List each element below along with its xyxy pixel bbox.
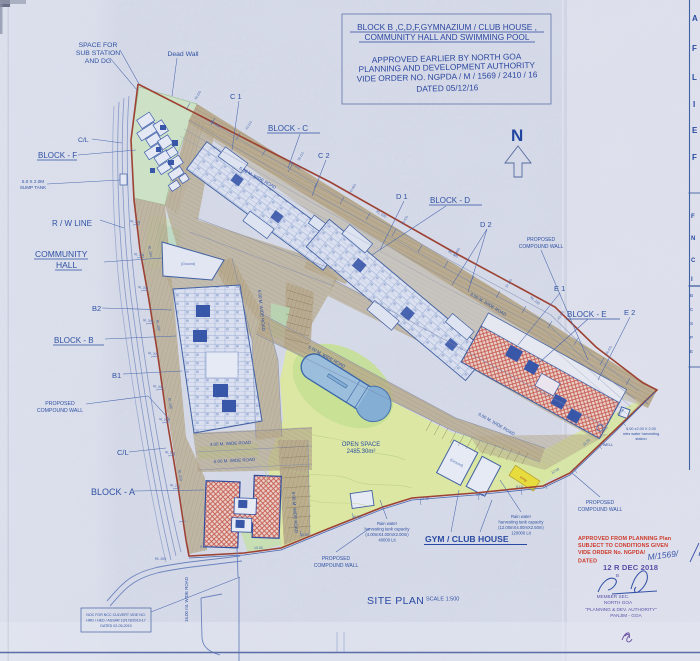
svg-text:SUMP TANK: SUMP TANK	[20, 185, 47, 190]
svg-text:2485.30m²: 2485.30m²	[347, 449, 376, 455]
svg-text:harvesting tank capacity: harvesting tank capacity	[365, 527, 411, 532]
svg-text:C/L: C/L	[78, 137, 89, 144]
svg-text:C 1: C 1	[230, 92, 242, 101]
svg-text:COMPOUND WALL: COMPOUND WALL	[578, 507, 623, 513]
svg-text:5.0 X 2.0M: 5.0 X 2.0M	[22, 179, 44, 184]
svg-text:mtrs water harvesting: mtrs water harvesting	[623, 432, 659, 436]
svg-text:DATED 05/12/16: DATED 05/12/16	[416, 82, 479, 94]
svg-text:F: F	[692, 44, 697, 53]
svg-text:S: S	[690, 321, 693, 326]
svg-text:E: E	[692, 126, 698, 135]
svg-text:E 2: E 2	[624, 308, 635, 317]
svg-text:GYM / CLUB HOUSE: GYM / CLUB HOUSE	[425, 534, 509, 544]
svg-text:PROPOSED: PROPOSED	[322, 556, 351, 562]
svg-text:BLOCK B ,C,D,F,GYMNAZIUM / CLU: BLOCK B ,C,D,F,GYMNAZIUM / CLUB HOUSE ,	[357, 22, 537, 32]
svg-text:PROPOSED: PROPOSED	[527, 237, 556, 243]
svg-text:F: F	[691, 214, 695, 220]
svg-text:SUBJECT TO CONDITIONS GIVEN: SUBJECT TO CONDITIONS GIVEN	[578, 543, 668, 549]
svg-text:COMPOUND WALL: COMPOUND WALL	[314, 563, 359, 569]
svg-text:SUB STATION: SUB STATION	[76, 50, 120, 57]
svg-text:PROPOSED: PROPOSED	[586, 500, 615, 506]
svg-text:PROPOSED: PROPOSED	[45, 401, 75, 407]
svg-text:N: N	[691, 236, 695, 242]
svg-text:E 1: E 1	[554, 284, 565, 293]
svg-text:WELL: WELL	[603, 443, 613, 447]
svg-text:station: station	[635, 437, 646, 441]
svg-text:B: B	[690, 293, 693, 298]
svg-text:harvesting tank capacity: harvesting tank capacity	[499, 520, 545, 525]
svg-text:(Ground): (Ground)	[181, 262, 195, 266]
svg-text:B2: B2	[92, 304, 101, 313]
svg-text:Rain water: Rain water	[511, 514, 532, 519]
svg-text:I: I	[693, 100, 695, 109]
svg-text:BLOCK - D: BLOCK - D	[430, 196, 470, 205]
svg-text:C: C	[691, 258, 696, 264]
svg-text:DATED: DATED	[578, 559, 597, 565]
svg-text:NORTH GOA: NORTH GOA	[604, 600, 633, 605]
svg-text:(12.00mX4.00mX2.50m): (12.00mX4.00mX2.50m)	[498, 525, 544, 530]
svg-text:COMMUNITY HALL AND SWIMMING PO: COMMUNITY HALL AND SWIMMING POOL	[364, 32, 529, 42]
svg-text:NOC FOR NCC CULVERT VIDE NO.: NOC FOR NCC CULVERT VIDE NO.	[86, 613, 146, 617]
svg-text:E: E	[690, 349, 693, 354]
svg-text:B1: B1	[112, 371, 121, 380]
svg-text:13.40: 13.40	[420, 497, 429, 501]
svg-text:HALL: HALL	[56, 260, 78, 270]
svg-text:A: A	[692, 14, 698, 23]
svg-text:DATED 02-05-2019: DATED 02-05-2019	[100, 624, 131, 628]
svg-text:F: F	[692, 153, 697, 162]
svg-text:COMMUNITY: COMMUNITY	[35, 249, 88, 259]
svg-text:40000 Lit: 40000 Lit	[378, 538, 396, 543]
svg-text:RL 200: RL 200	[155, 557, 166, 561]
svg-text:9.75: 9.75	[476, 493, 483, 497]
svg-text:5.00 x2.00 X 2.00: 5.00 x2.00 X 2.00	[626, 427, 656, 431]
svg-text:PANJIM - GOA: PANJIM - GOA	[610, 613, 642, 618]
svg-text:BLOCK - C: BLOCK - C	[268, 124, 308, 133]
svg-text:SITE PLAN: SITE PLAN	[367, 595, 424, 607]
svg-text:(4.00mX4.00mX2.00m): (4.00mX4.00mX2.00m)	[365, 532, 409, 537]
svg-text:12 R DEC 2018: 12 R DEC 2018	[603, 563, 658, 572]
svg-text:B: B	[616, 573, 619, 578]
svg-text:R / W LINE: R / W LINE	[52, 219, 92, 228]
svg-text:COMPOUND WALL: COMPOUND WALL	[37, 408, 83, 414]
svg-text:BLOCK - B: BLOCK - B	[54, 336, 94, 345]
svg-text:AND DG: AND DG	[85, 58, 111, 65]
svg-text:MEMBER SEC.: MEMBER SEC.	[597, 594, 630, 599]
svg-text:HRD / HED / ASSAR 19/178/2019-: HRD / HED / ASSAR 19/178/2019-17	[86, 619, 146, 623]
svg-text:N: N	[511, 126, 523, 145]
svg-text:9.20: 9.20	[200, 545, 207, 549]
svg-text:16.00 mt. WIDE ROAD: 16.00 mt. WIDE ROAD	[184, 577, 189, 622]
svg-text:BLOCK - A: BLOCK - A	[91, 487, 135, 497]
svg-text:BLOCK - F: BLOCK - F	[38, 151, 77, 160]
svg-text:Rain water: Rain water	[377, 521, 398, 526]
svg-text:L: L	[692, 73, 697, 82]
svg-text:D 2: D 2	[480, 220, 492, 229]
svg-text:8.10: 8.10	[516, 485, 523, 489]
svg-text:C/L: C/L	[117, 448, 129, 457]
svg-text:120000 Lit: 120000 Lit	[511, 531, 531, 536]
svg-text:BLOCK - E: BLOCK - E	[567, 310, 607, 319]
svg-text:D 1: D 1	[396, 192, 408, 201]
svg-text:SCALE 1:500: SCALE 1:500	[426, 597, 459, 603]
svg-text:C 2: C 2	[318, 151, 330, 160]
svg-text:10.00: 10.00	[254, 546, 263, 550]
svg-text:Dead Wall: Dead Wall	[167, 51, 199, 58]
svg-text:OPEN SPACE: OPEN SPACE	[342, 442, 381, 448]
svg-text:APPROVED FROM PLANNING Plan: APPROVED FROM PLANNING Plan	[578, 536, 671, 542]
svg-text:COMPOUND WALL: COMPOUND WALL	[519, 244, 564, 250]
svg-text:SPACE FOR: SPACE FOR	[79, 42, 118, 49]
svg-text:VIDE ORDER No. NGPDA/: VIDE ORDER No. NGPDA/	[578, 550, 646, 556]
svg-text:"PLANNING & DEV. AUTHORITY": "PLANNING & DEV. AUTHORITY"	[585, 607, 657, 612]
svg-text:P: P	[690, 335, 693, 340]
